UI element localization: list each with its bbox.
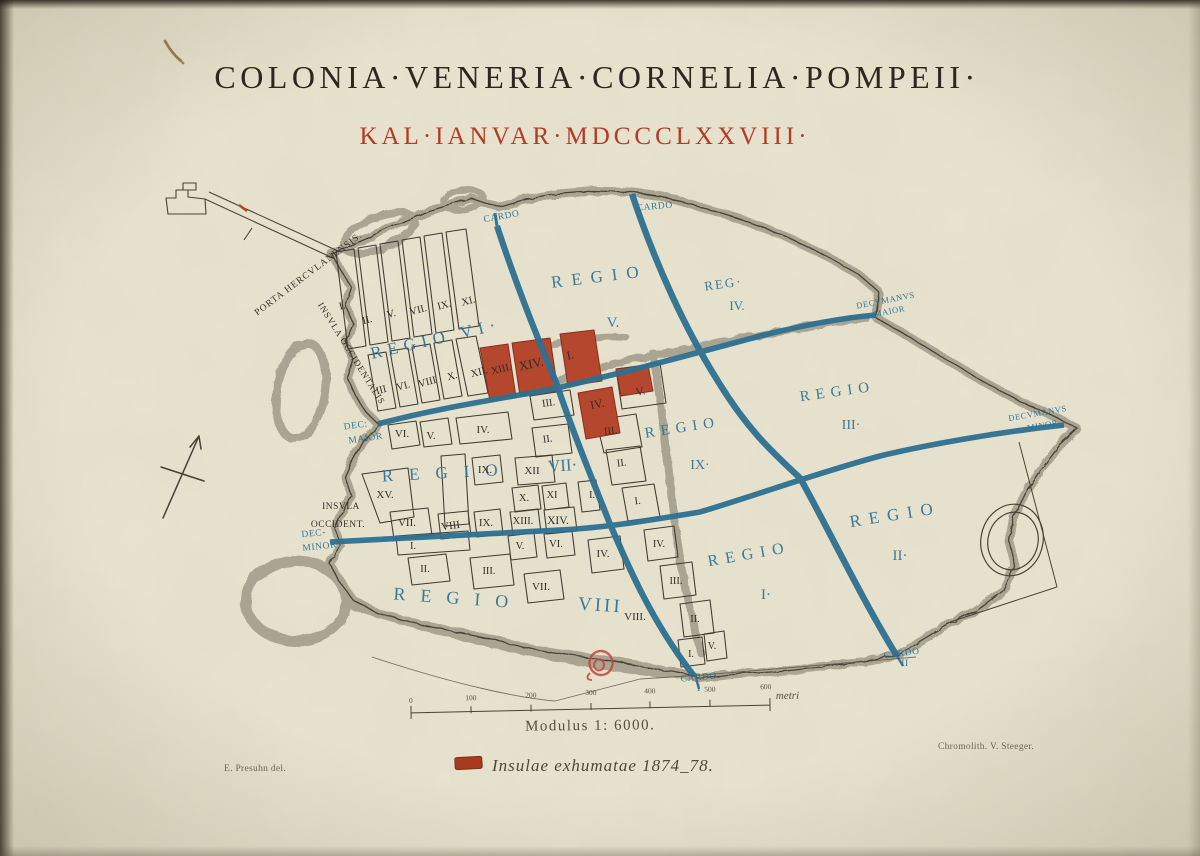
insula-label: II. — [616, 457, 627, 469]
insula-label: IV. — [653, 539, 665, 550]
plate-title: COLONIA·VENERIA·CORNELIA·POMPEII· — [214, 59, 979, 95]
plate-date: KAL·IANVAR·MDCCCLXXVIII· — [359, 123, 810, 150]
insula-label: X. — [519, 493, 529, 504]
region-label-vii-num: VII· — [547, 455, 578, 476]
insula-label: III. — [669, 576, 682, 587]
region-label-v-num: V. — [607, 315, 620, 331]
credit-draughtsman: E. Presuhn del. — [224, 764, 286, 774]
map-legend: Insulae exhumatae 1874_78. — [455, 756, 714, 775]
insula-label: VI. — [549, 539, 563, 550]
insula-label: XI — [546, 490, 558, 501]
insula-label: II. — [542, 433, 553, 445]
pompeii-plan-1878: COLONIA·VENERIA·CORNELIA·POMPEII· KAL·IA… — [0, 0, 1200, 856]
legend-swatch — [455, 756, 483, 769]
region-label-ii-num: II· — [893, 548, 908, 564]
insula-label: IX. — [479, 517, 494, 529]
insula-label: VI. — [395, 428, 410, 440]
scale-tick-300: 300 — [585, 688, 597, 697]
region-label-viii-num: VIII — [577, 593, 623, 617]
scale-modulus: Modulus 1: 6000. — [525, 717, 655, 734]
insula-label: V. — [516, 541, 525, 552]
insula-label: IV. — [477, 424, 490, 436]
insula-label: XIII. — [513, 516, 534, 527]
scale-tick-400: 400 — [644, 686, 656, 695]
region-label-iii-num: III· — [842, 418, 861, 433]
scale-tick-200: 200 — [525, 691, 537, 700]
insula-label: XIV. — [547, 515, 569, 527]
scale-unit: metri — [776, 690, 799, 702]
insula-label: I. — [589, 490, 595, 501]
credit-lithographer: Chromolith. V. Steeger. — [938, 742, 1034, 752]
street-label-cardo-i-num: I — [697, 684, 701, 694]
insula-label: IX. — [478, 464, 493, 476]
insula-label: VIII. — [624, 611, 646, 623]
region-label-ix-num: IX· — [690, 458, 709, 473]
insula-label: III. — [482, 566, 495, 577]
edge-shadow-top — [0, 0, 1200, 9]
insula-label: I. — [410, 541, 416, 552]
scale-tick-0: 0 — [409, 696, 413, 705]
legend-label: Insulae exhumatae 1874_78. — [491, 756, 714, 775]
edge-shadow-bottom — [0, 846, 1200, 856]
insula-label: II. — [420, 564, 430, 575]
insula-label: III. — [603, 425, 618, 438]
scale-tick-500: 500 — [704, 685, 716, 694]
insula-label: III. — [541, 397, 556, 410]
insula-label: IV. — [589, 396, 606, 413]
map-plate: COLONIA·VENERIA·CORNELIA·POMPEII· KAL·IA… — [0, 0, 1200, 856]
scale-tick-600: 600 — [760, 682, 772, 691]
region-label-iv-num: IV. — [729, 298, 744, 313]
region-label-i-num: I· — [761, 587, 771, 603]
insula-label: II. — [690, 614, 700, 625]
insula-label: IV. — [597, 548, 610, 560]
insula-occident-label-2: OCCIDENT. — [311, 520, 365, 530]
insula-label: VII. — [398, 517, 416, 529]
scale-tick-100: 100 — [465, 693, 477, 702]
insula-label: I. — [688, 649, 694, 660]
insula-occident-label-1: INSVLA — [322, 502, 360, 512]
insula-label: V. — [426, 430, 436, 442]
edge-shadow-left — [0, 0, 14, 856]
insula-label: XII — [524, 465, 540, 477]
insula-label: VII. — [532, 581, 550, 593]
insula-label: V. — [708, 641, 716, 652]
street-label-cardo-ii-num: II — [901, 659, 909, 669]
edge-shadow-right — [1188, 0, 1200, 856]
insula-label: XV. — [376, 489, 393, 501]
